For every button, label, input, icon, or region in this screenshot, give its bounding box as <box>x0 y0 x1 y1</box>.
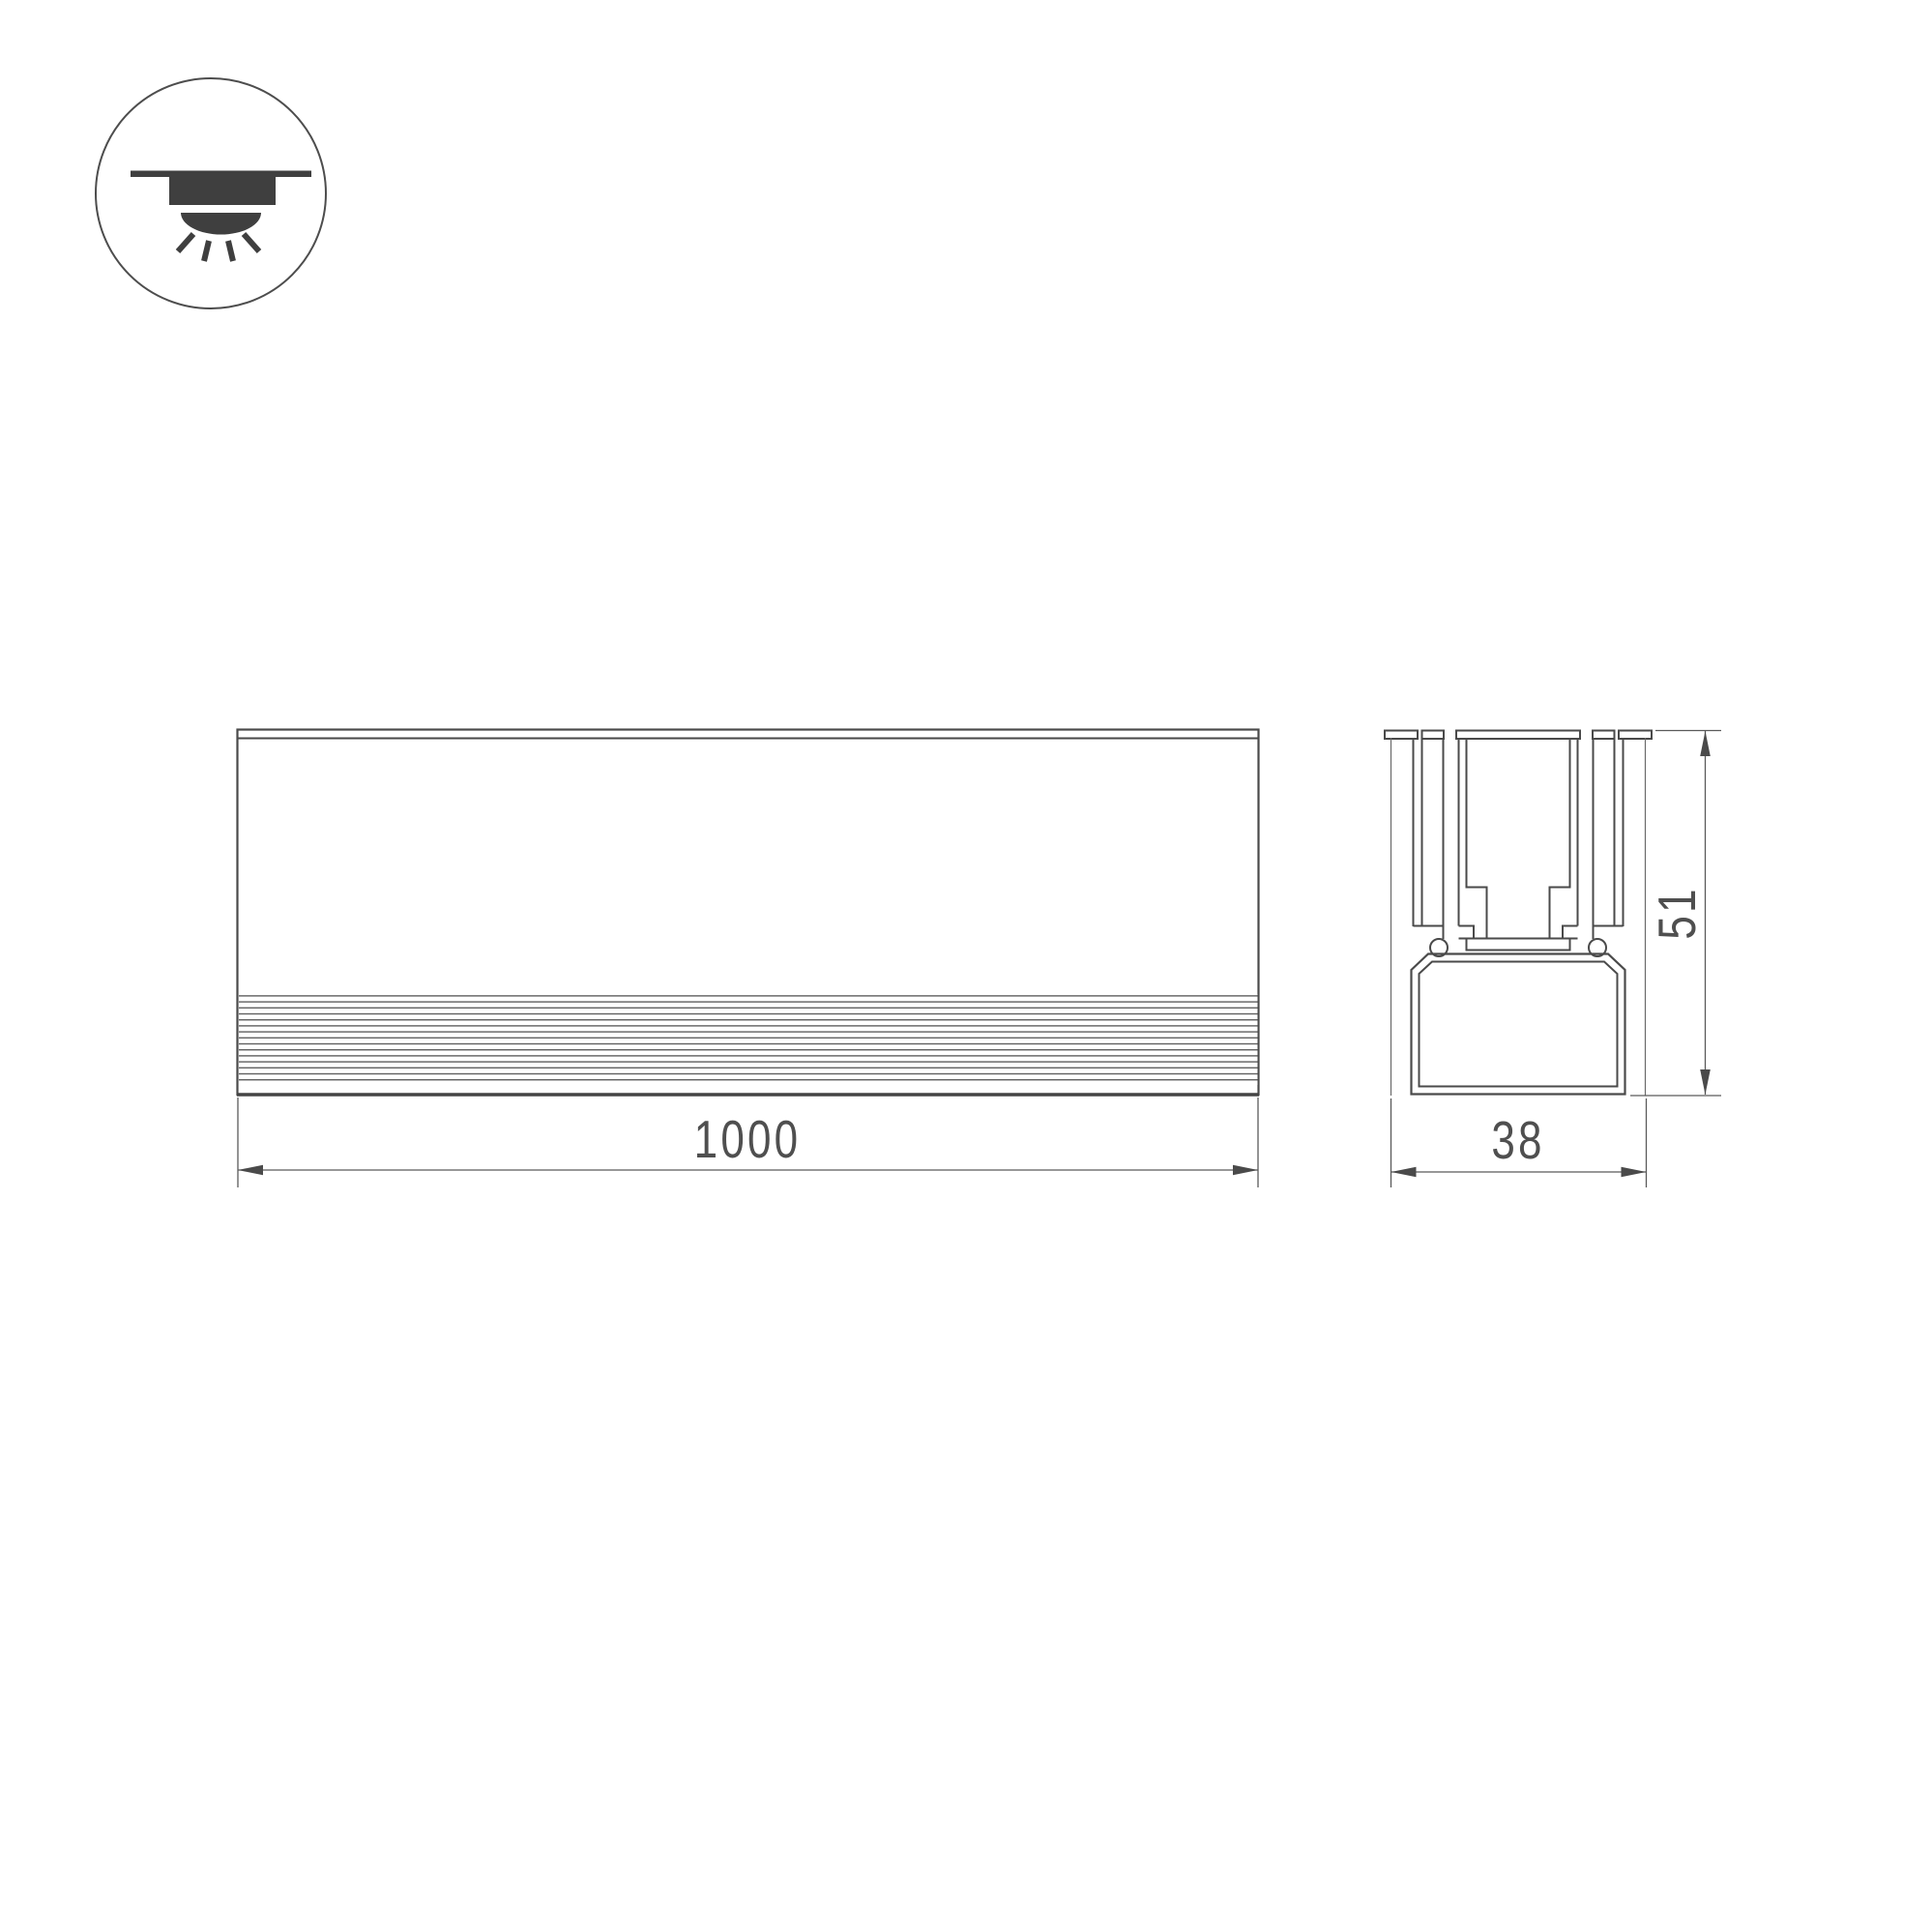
chamber-outer-wall <box>1412 954 1625 1095</box>
profile-technical-drawing: 1000 38 51 <box>0 0 1932 1932</box>
icon-lamp-dome <box>181 213 261 235</box>
arrowhead-left-icon <box>1391 1167 1417 1178</box>
icon-ceiling-line <box>131 171 311 178</box>
arrowhead-right-icon <box>1622 1167 1647 1178</box>
section-lamp-chamber <box>1412 954 1625 1095</box>
dim-51-label: 51 <box>1647 886 1707 939</box>
arrowhead-right-icon <box>1233 1165 1258 1176</box>
light-ray-icon <box>244 234 259 251</box>
recessed-downlight-icon <box>96 78 326 308</box>
arrowhead-down-icon <box>1700 1069 1711 1095</box>
technical-drawing-page: 1000 38 51 <box>0 0 1932 1932</box>
front-view <box>237 730 1259 1096</box>
cavity-inner-step <box>1467 738 1487 938</box>
arrowhead-up-icon <box>1700 731 1711 756</box>
light-ray-icon <box>228 241 233 261</box>
section-view <box>1385 731 1652 1097</box>
chamber-inner-wall <box>1420 962 1618 1087</box>
section-center-tab <box>1456 731 1580 740</box>
dim-38-label: 38 <box>1491 1110 1544 1170</box>
icon-recessed-box <box>169 177 276 205</box>
light-ray-icon <box>204 241 209 261</box>
light-ray-icon <box>178 234 193 251</box>
diffuser-hatch-band <box>239 994 1258 1085</box>
cavity-inner-step <box>1550 738 1570 938</box>
icon-light-rays <box>178 234 259 261</box>
section-center-cavity <box>1456 731 1580 951</box>
section-plate <box>1467 939 1570 951</box>
arrowhead-left-icon <box>238 1165 263 1176</box>
dim-1000-label: 1000 <box>694 1109 802 1169</box>
